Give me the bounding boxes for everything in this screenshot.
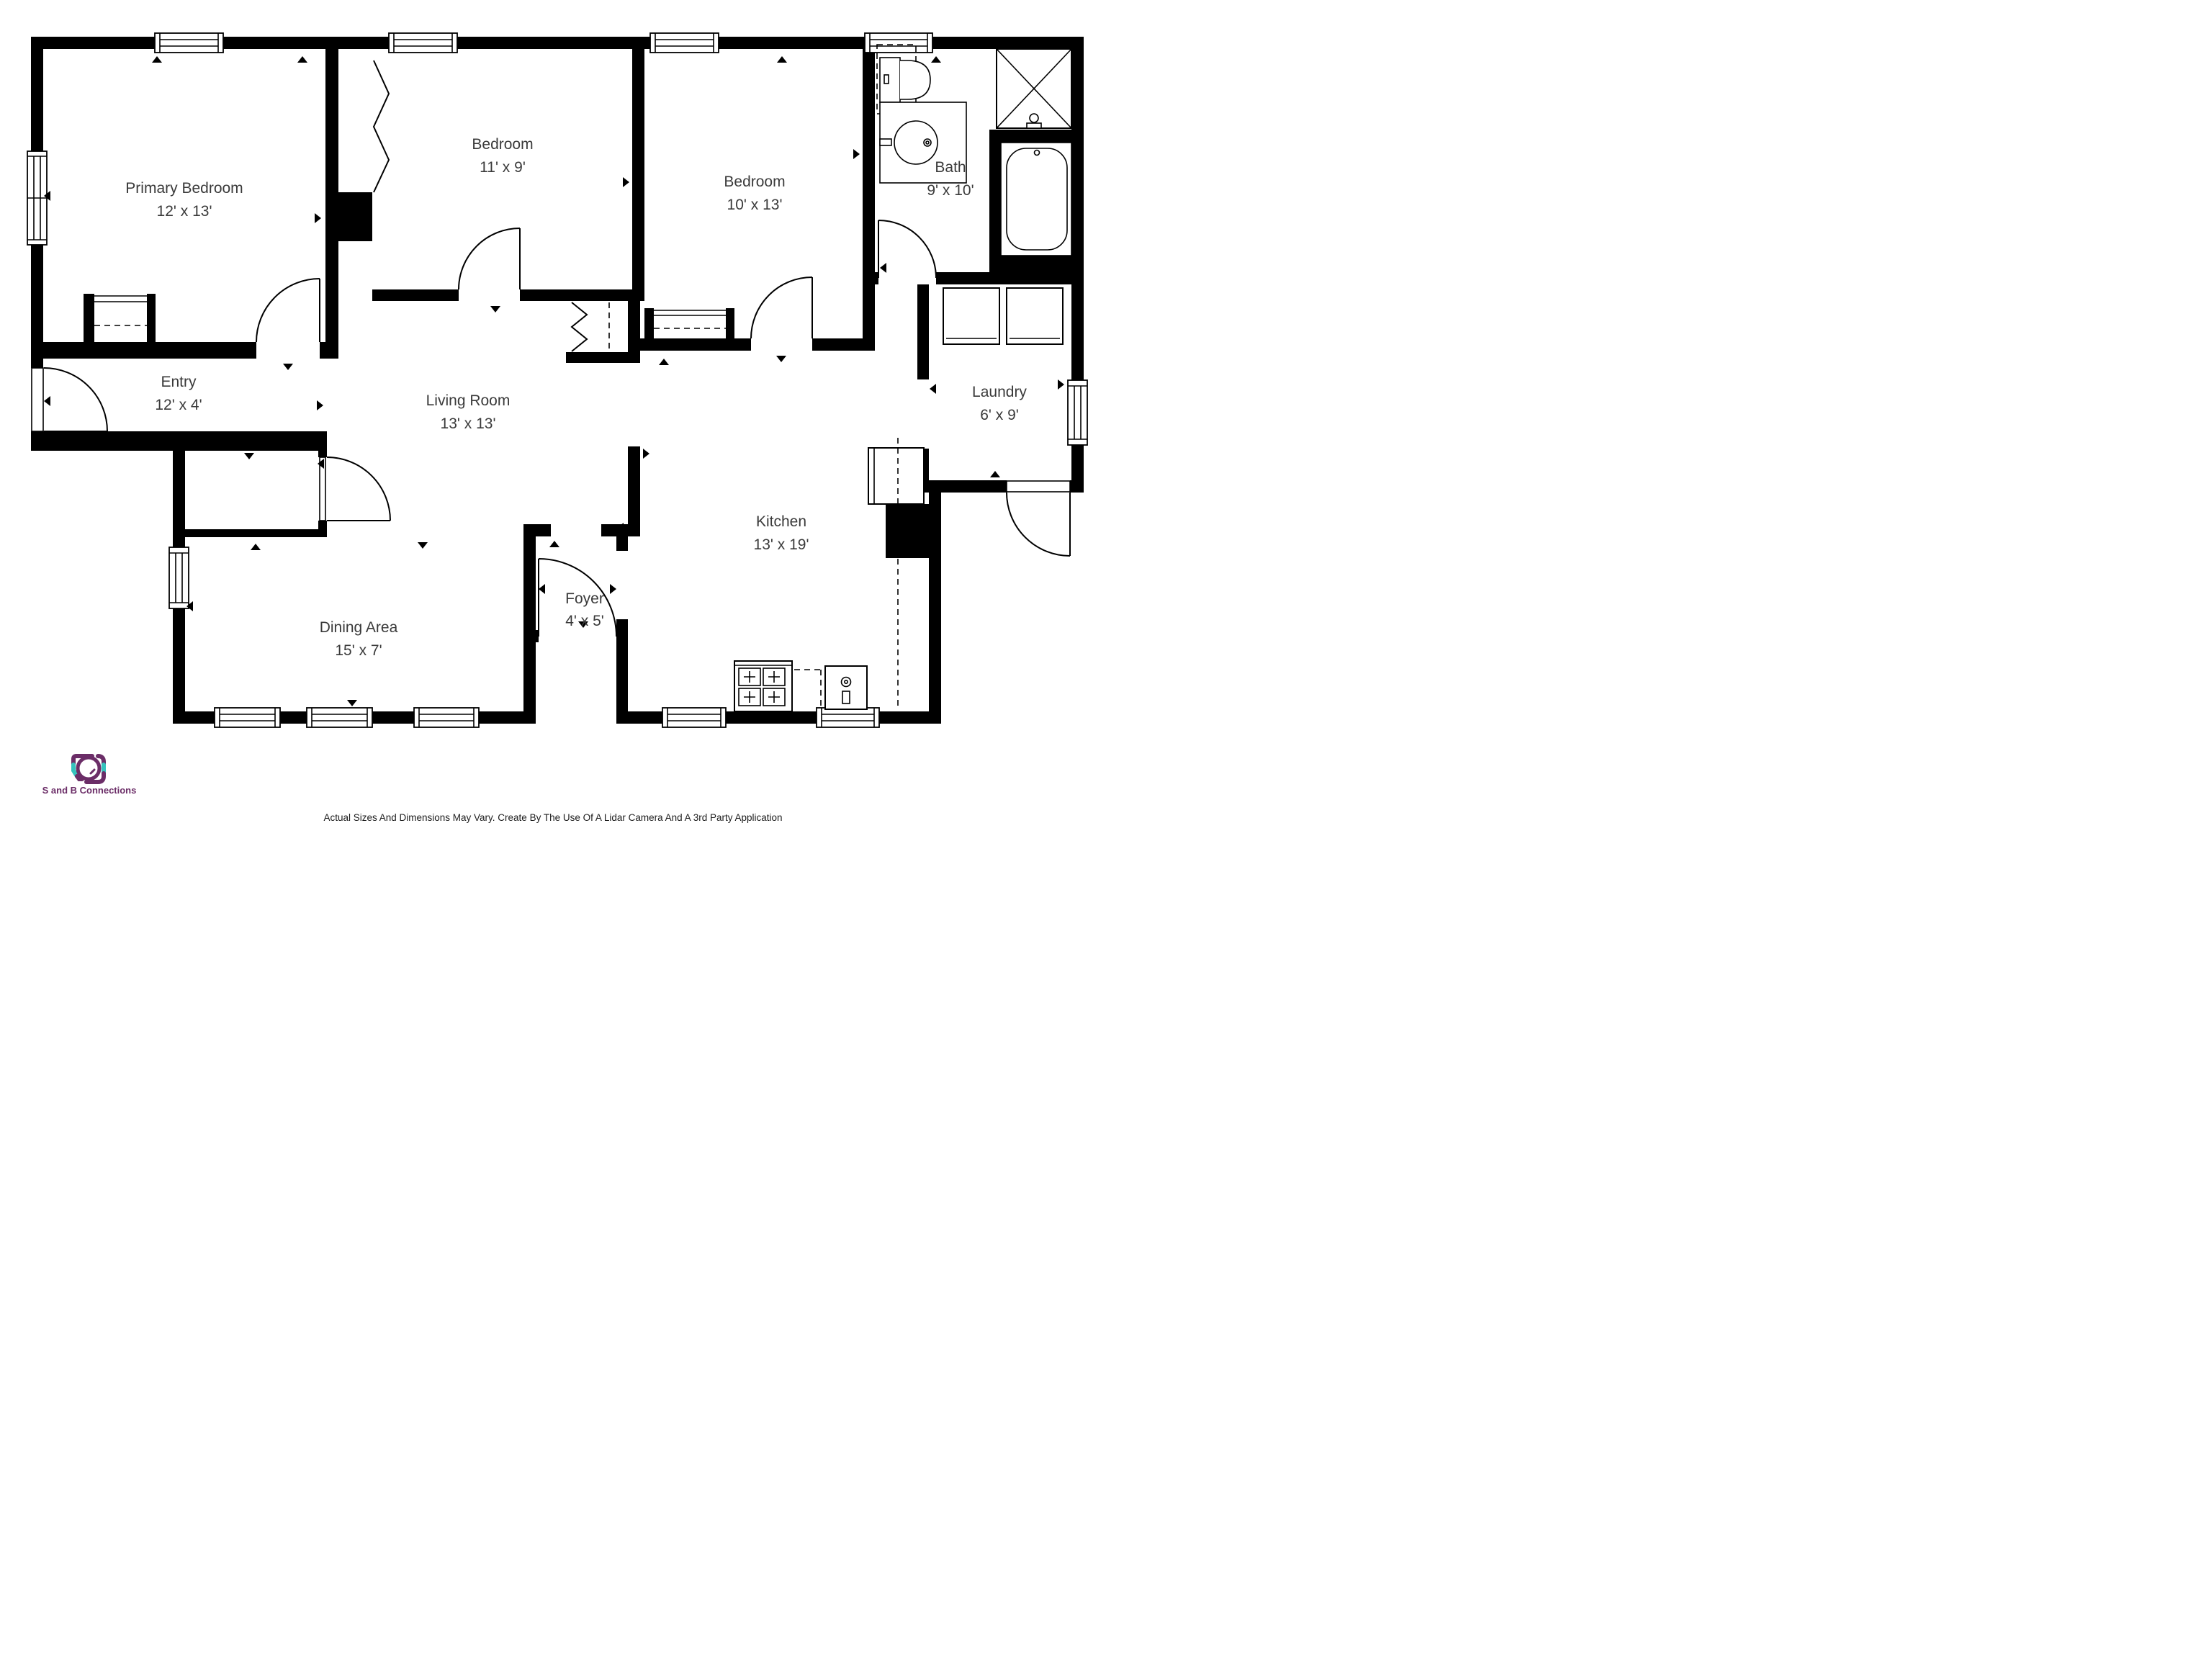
room-dims: 9' x 10' [927, 182, 974, 199]
floor-plan-drawing: Primary Bedroom 12' x 13' Bedroom 11' x … [0, 0, 1106, 829]
room-dims: 13' x 13' [441, 415, 496, 432]
window-icon [389, 33, 457, 53]
room-name: Bedroom [724, 174, 785, 190]
shower-icon [997, 49, 1071, 128]
room-name: Entry [161, 374, 197, 390]
room-dims: 12' x 4' [155, 397, 202, 413]
room-name: Bedroom [472, 136, 533, 153]
window-icon [662, 708, 726, 727]
room-name: Kitchen [756, 513, 806, 530]
window-icon [1068, 380, 1087, 445]
room-name: Foyer [565, 590, 604, 607]
floor-plan-page: Primary Bedroom 12' x 13' Bedroom 11' x … [0, 0, 1106, 829]
room-dims: 15' x 7' [335, 642, 382, 659]
window-icon [155, 33, 223, 53]
window-icon [865, 33, 932, 53]
room-dims: 13' x 19' [754, 536, 809, 553]
window-icon [27, 151, 47, 245]
stove-icon [734, 661, 792, 711]
disclaimer-text: Actual Sizes And Dimensions May Vary. Cr… [323, 812, 782, 823]
window-icon [414, 708, 479, 727]
room-name: Laundry [972, 384, 1027, 400]
company-logo-text: S and B Connections [42, 785, 137, 796]
room-dims: 6' x 9' [980, 407, 1019, 423]
window-icon [650, 33, 719, 53]
kitchen-sink-icon [825, 666, 867, 709]
room-dims: 4' x 5' [565, 613, 604, 629]
bathtub-icon [1001, 143, 1071, 256]
window-icon [307, 708, 372, 727]
window-icon [215, 708, 280, 727]
washer-icon [943, 288, 999, 344]
dryer-icon [1007, 288, 1063, 344]
room-dims: 12' x 13' [157, 203, 212, 220]
refrigerator-icon [868, 448, 924, 504]
room-dims: 11' x 9' [480, 159, 526, 176]
window-icon [169, 547, 189, 608]
window-icon [817, 708, 879, 727]
room-name: Bath [935, 159, 966, 176]
room-name: Living Room [426, 392, 511, 409]
room-name: Dining Area [320, 619, 398, 636]
room-dims: 10' x 13' [727, 197, 783, 213]
room-name: Primary Bedroom [125, 180, 243, 197]
